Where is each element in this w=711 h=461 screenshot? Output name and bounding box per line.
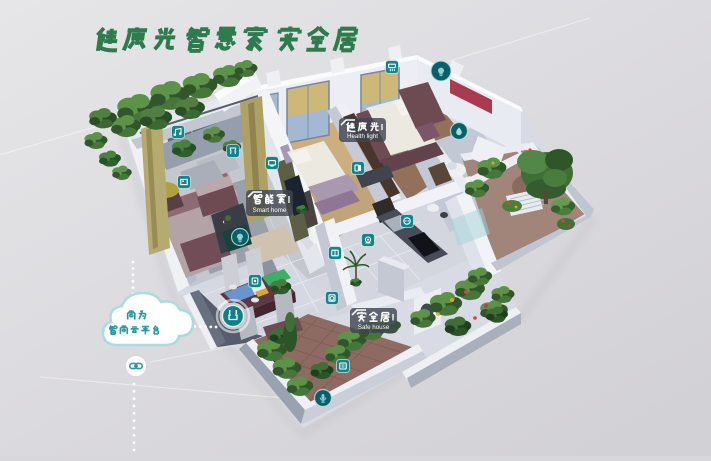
svg-text:Safe house: Safe house [358,324,390,331]
svg-text:Smart home: Smart home [253,207,287,214]
svg-text:Health light: Health light [347,133,378,140]
